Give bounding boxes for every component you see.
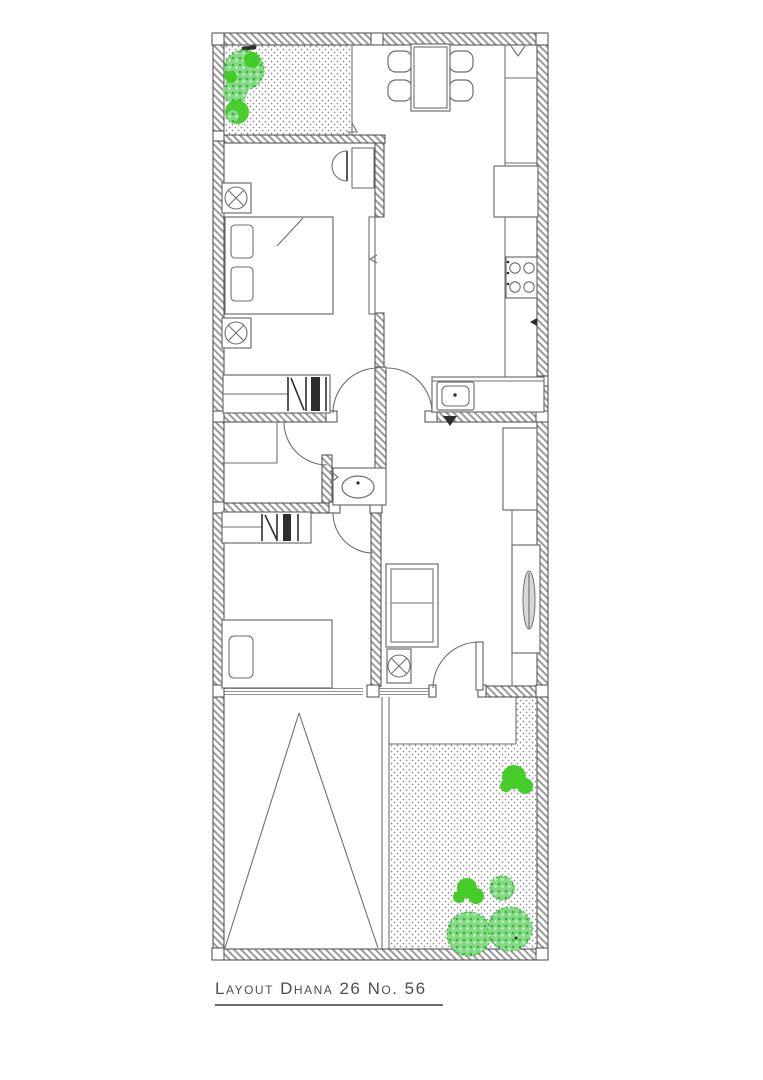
sliding-panel bbox=[369, 217, 375, 314]
door-swing-master bbox=[333, 368, 378, 413]
sink-drain bbox=[453, 393, 456, 396]
stove-knob bbox=[507, 283, 510, 286]
floor-plan-page: Layout Dhana 26 No. 56 bbox=[0, 0, 763, 1080]
column bbox=[212, 948, 224, 960]
shrub bbox=[500, 780, 512, 792]
swing-arrow bbox=[511, 46, 525, 56]
column bbox=[213, 131, 224, 141]
entrance-door-swing bbox=[433, 642, 479, 688]
tall-cabinet-upper bbox=[503, 428, 537, 510]
bathroom bbox=[330, 468, 386, 505]
storage-shelf-outline bbox=[222, 423, 277, 463]
wall-bottom bbox=[213, 949, 548, 960]
column bbox=[536, 685, 548, 697]
washbasin bbox=[342, 476, 374, 498]
dining-chair bbox=[449, 51, 473, 72]
wall-tick bbox=[370, 255, 377, 263]
wall-patio-bedroom bbox=[224, 135, 385, 143]
dining-chair bbox=[449, 80, 473, 101]
column bbox=[536, 33, 548, 45]
shrub bbox=[244, 52, 260, 68]
shrub-dot bbox=[515, 937, 518, 940]
double-bed bbox=[225, 217, 333, 314]
wall-hall-pillar bbox=[375, 367, 386, 468]
hanger-block bbox=[311, 377, 320, 411]
hanger-block bbox=[283, 514, 291, 541]
column bbox=[367, 685, 379, 697]
second-bedroom bbox=[222, 512, 373, 688]
wall-right bbox=[537, 33, 548, 960]
wall-tick bbox=[530, 318, 537, 326]
wall-front-right bbox=[479, 686, 537, 697]
entrance-door-leaf bbox=[476, 642, 483, 690]
storage-room bbox=[222, 422, 327, 465]
door-swing-bedroom2 bbox=[333, 513, 373, 553]
column bbox=[212, 33, 224, 45]
shrub bbox=[225, 71, 237, 83]
column bbox=[213, 502, 224, 513]
living-room bbox=[386, 428, 540, 690]
shrub bbox=[468, 888, 484, 904]
dining-chair bbox=[388, 51, 412, 72]
stove-knob bbox=[507, 261, 510, 264]
basin-drain bbox=[356, 481, 359, 484]
dining-area bbox=[388, 44, 473, 111]
refrigerator bbox=[494, 166, 538, 217]
stove-knob bbox=[507, 272, 510, 275]
column bbox=[371, 33, 383, 45]
door-swing-storage bbox=[284, 422, 327, 465]
dining-table bbox=[411, 44, 450, 111]
column bbox=[536, 411, 548, 422]
shrub bbox=[453, 891, 465, 903]
wall-left bbox=[213, 33, 224, 960]
carport-marking-triangle bbox=[225, 713, 378, 948]
bedroom-door-swing bbox=[332, 151, 347, 181]
wall-living-divider bbox=[371, 513, 381, 688]
closet-box bbox=[352, 148, 374, 188]
dining-chair bbox=[388, 80, 412, 101]
plan-title: Layout Dhana 26 No. 56 bbox=[215, 979, 443, 1006]
shrub bbox=[517, 778, 533, 794]
door-swing-hall bbox=[387, 368, 432, 413]
wall-bedroom-right-lower bbox=[375, 313, 384, 367]
shrub bbox=[227, 110, 239, 122]
wall-bathroom-left bbox=[322, 455, 332, 507]
column bbox=[213, 411, 224, 422]
two-seat-sofa bbox=[386, 564, 438, 647]
column bbox=[425, 411, 437, 422]
stove bbox=[506, 257, 537, 298]
column bbox=[536, 948, 548, 960]
wall-bedroom-right-upper bbox=[375, 143, 384, 217]
master-bedroom bbox=[222, 148, 377, 413]
floor-plan-drawing bbox=[0, 0, 763, 1080]
